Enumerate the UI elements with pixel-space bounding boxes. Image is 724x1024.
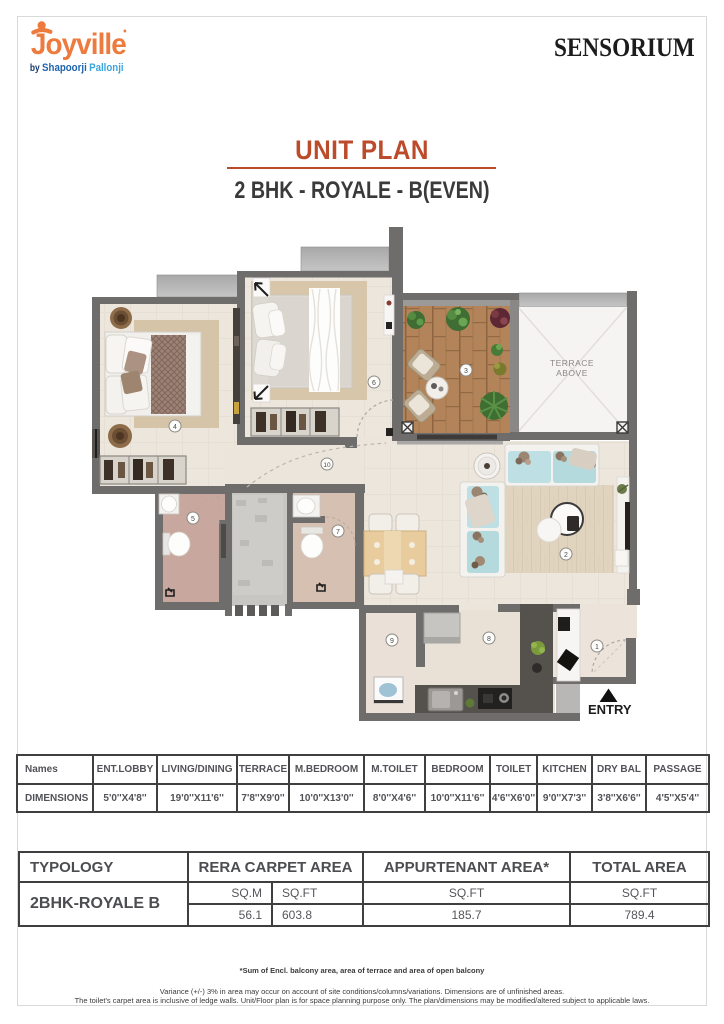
svg-text:1: 1 (595, 644, 599, 651)
svg-text:8: 8 (487, 636, 491, 643)
svg-text:5: 5 (191, 516, 195, 523)
svg-text:6: 6 (372, 380, 376, 387)
svg-text:9: 9 (390, 638, 394, 645)
svg-text:4: 4 (173, 424, 177, 431)
svg-text:2: 2 (564, 552, 568, 559)
svg-text:Joyville: Joyville (31, 28, 127, 61)
svg-text:7: 7 (336, 529, 340, 536)
svg-text:10: 10 (323, 462, 331, 469)
svg-text:by Shapoorji Pallonji: by Shapoorji Pallonji (30, 61, 124, 74)
svg-text:TERRACE: TERRACE (550, 358, 594, 368)
svg-text:ENTRY: ENTRY (588, 702, 632, 717)
svg-text:3: 3 (464, 368, 468, 375)
svg-text:ABOVE: ABOVE (556, 368, 588, 378)
